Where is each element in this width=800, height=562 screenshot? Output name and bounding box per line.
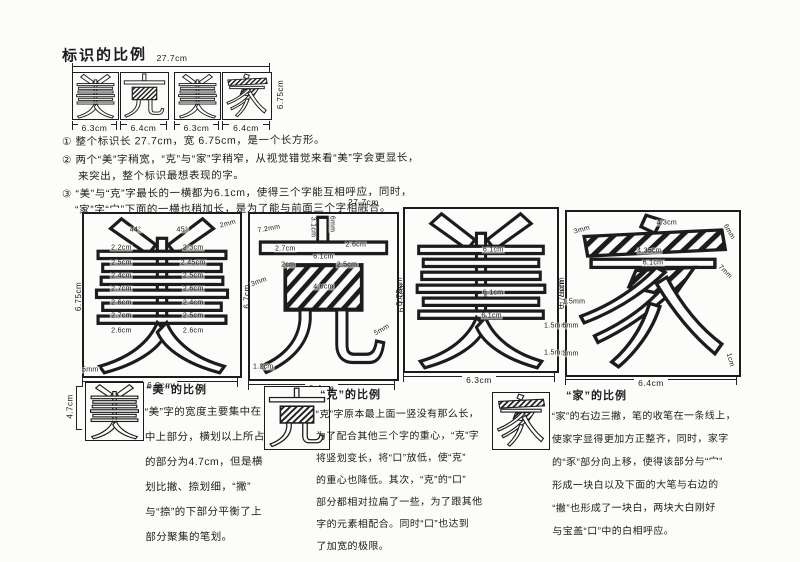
jia-glyph (223, 73, 271, 119)
section-title-mei: “美”的比例 (146, 381, 207, 397)
measurement-label: 2.2cm (110, 245, 133, 252)
measurement-label: 2.5cm (182, 272, 205, 279)
measurement-label: 2.6cm (182, 285, 205, 292)
ke-glyph (250, 214, 397, 379)
page-title: 标识的比例 (62, 43, 147, 65)
measurement-label: 2cm (280, 262, 296, 269)
mei-height-label: 4.7cm (66, 394, 75, 418)
width-label: 6.3cm (180, 123, 214, 133)
mei-glyph (84, 214, 240, 376)
strip-width-label: 27.7cm (150, 53, 194, 63)
strip-char-box-jia (222, 72, 272, 120)
measurement-label: 6.1cm (642, 259, 665, 266)
note-2-line-2: 来突出，整个标识最想表现的字。 (78, 167, 245, 183)
measurement-label: 45° (176, 227, 190, 234)
paragraph-line: “克”字原本最上面一竖没有那么长， (316, 404, 483, 427)
diagram-box-mei-2: 6.75cm 6.75cm 6.1cm6.1cm6.1cm1.5mm1.5mm (403, 207, 559, 373)
width-label: 6.3cm (462, 375, 496, 385)
measurement-label: 2.5cm (110, 259, 133, 266)
measurement-label: 3mm (561, 350, 579, 357)
jia-glyph (567, 212, 739, 375)
measurement-label: 2.6cm (110, 327, 133, 334)
note-3-width-label: 27.7cm (348, 197, 379, 207)
height-label-left: 6.75cm (74, 282, 83, 311)
strip-height-label: 6.75cm (276, 80, 285, 109)
diagram-box-mei-1: 6.75cm 6.7cm 44°45°2mm2.2cm2.5cm2.4cm2.7… (82, 212, 242, 378)
measurement-label: 5mm (81, 366, 99, 373)
note-1: ① 整个标识长 27.7cm，宽 6.75cm，是一个长方形。 (62, 132, 325, 149)
measurement-label: 2.4cm (182, 300, 205, 307)
strip-char-box-mei-2 (174, 72, 221, 120)
measurement-label: 2.7cm (110, 285, 133, 292)
mei-glyph (86, 383, 143, 440)
section-paragraph-ke: “克”字原本最上面一竖没有那么长，为了配合其他三个字的重心，“克”字将竖划变长，… (316, 404, 483, 559)
diagram-box-ke: 6.75cm 7.2mm3.1cm6mm2.7cm2.6cm6.1cm2cm2.… (248, 212, 399, 381)
strip-char-box-mei-1 (72, 72, 119, 120)
measurement-label: 2.5cm (336, 262, 359, 269)
measurement-label: 4.6cm (312, 283, 335, 290)
measurement-label: 6.1cm (482, 246, 505, 253)
ke-glyph (121, 73, 168, 119)
mei-glyph (73, 73, 118, 119)
paragraph-line: 部分聚集的笔划。 (145, 525, 265, 551)
section-title-jia: “家”的比例 (566, 387, 627, 403)
paragraph-line: 了加宽的极限。 (316, 536, 483, 559)
measurement-label: 2.45cm (180, 259, 207, 266)
measurement-label: 2.6cm (110, 300, 133, 307)
strip-char-box-ke (120, 72, 169, 120)
paragraph-line: “美”字的宽度主要集中在 (145, 400, 265, 426)
measurement-label: 2.3cm (182, 245, 205, 252)
width-label: 6.4cm (127, 123, 161, 133)
paragraph-line: 为了配合其他三个字的重心，“克”字 (316, 426, 483, 449)
sketch-page: 标识的比例 27.7cm 6.75cm 6.3cm 6.4cm 6.3cm 6.… (0, 0, 800, 562)
paragraph-line: 将竖划变长，将“口”放低，使“克” (316, 448, 483, 471)
width-label: 6.3cm (78, 123, 112, 133)
section-paragraph-jia: “家”的右边三撇，笔的收笔在一条线上，使家字显得更加方正整齐，同时，家字的“豕”… (552, 405, 737, 544)
paragraph-line: 的重心也降低。其次，“克”的“口” (316, 470, 483, 493)
measurement-label: 4.35cm (636, 248, 663, 255)
measurement-label: 6.1cm (480, 312, 503, 319)
paragraph-line: 与宝盖“口”中的白相呼应。 (552, 520, 736, 544)
paragraph-line: “家”的右边三撇，笔的收笔在一条线上， (552, 405, 736, 429)
measurement-label: 2.6cm (345, 242, 368, 249)
paragraph-line: 与“捺”的下部分平衡了上 (145, 500, 265, 526)
section-paragraph-mei: “美”字的宽度主要集中在中上部分，横划以上所占的部分为4.7cm，但是横划比撇、… (145, 400, 266, 551)
note-2-line-1: ② 两个“美”字稍宽，“克”与“家”字稍窄，从视觉错觉来看“美”字会更显长， (62, 150, 419, 167)
width-label: 6.4cm (634, 378, 668, 388)
measurement-label: 3.1cm (310, 216, 317, 239)
measurement-label: 44° (129, 227, 143, 234)
section-title-ke: “克”的比例 (320, 386, 381, 402)
width-label: 6.4cm (229, 123, 263, 133)
height-label-left: 6.75cm (395, 277, 404, 306)
paragraph-line: 部分都相对拉扁了一些，为了跟其他 (316, 492, 483, 515)
paragraph-line: 的“豕”部分向上移，使得该部分与“宀” (552, 451, 736, 475)
diagram-box-jia: 6.75cm 4.3cm3mm6mm4.35cm6.1cm7mm1.5mm6mm… (565, 210, 741, 377)
paragraph-line: 中上部分，横划以上所占 (145, 425, 265, 451)
measurement-label: 6mm (561, 323, 579, 330)
jia-glyph (493, 393, 549, 449)
paragraph-line: 字的元素相配合。同时“口”也达到 (316, 514, 483, 537)
small-char-box-mei (85, 382, 144, 441)
paragraph-line: 形成一块白以及下面的大笔与右边的 (552, 474, 736, 498)
paragraph-line: “撇”也形成了一块白，两块大白刚好 (552, 497, 736, 521)
paragraph-line: 使家字显得更加方正整齐，同时，家字 (552, 428, 736, 452)
measurement-label: 4.3cm (655, 220, 678, 227)
paragraph-line: 的部分为4.7cm，但是横 (145, 450, 265, 476)
measurement-label: 2.5cm (182, 313, 205, 320)
measurement-label: 1.2cm (252, 364, 275, 371)
small-char-box-jia (492, 392, 550, 450)
measurement-label: 2.7cm (110, 313, 133, 320)
measurement-label: 6.1cm (312, 253, 335, 260)
measurement-label: 2.7cm (274, 245, 297, 252)
mei-glyph (175, 73, 220, 119)
measurement-label: 2.4cm (110, 272, 133, 279)
strip-width-dimension-line (72, 66, 270, 67)
measurement-label: 6.1cm (482, 290, 505, 297)
measurement-label: 1.5mm (561, 298, 586, 305)
measurement-label: 2.6cm (182, 327, 205, 334)
measurement-label: 6mm (329, 215, 336, 233)
paragraph-line: 划比撇、捺划细，“撇” (145, 475, 265, 501)
mei-height-bracket (76, 386, 82, 430)
